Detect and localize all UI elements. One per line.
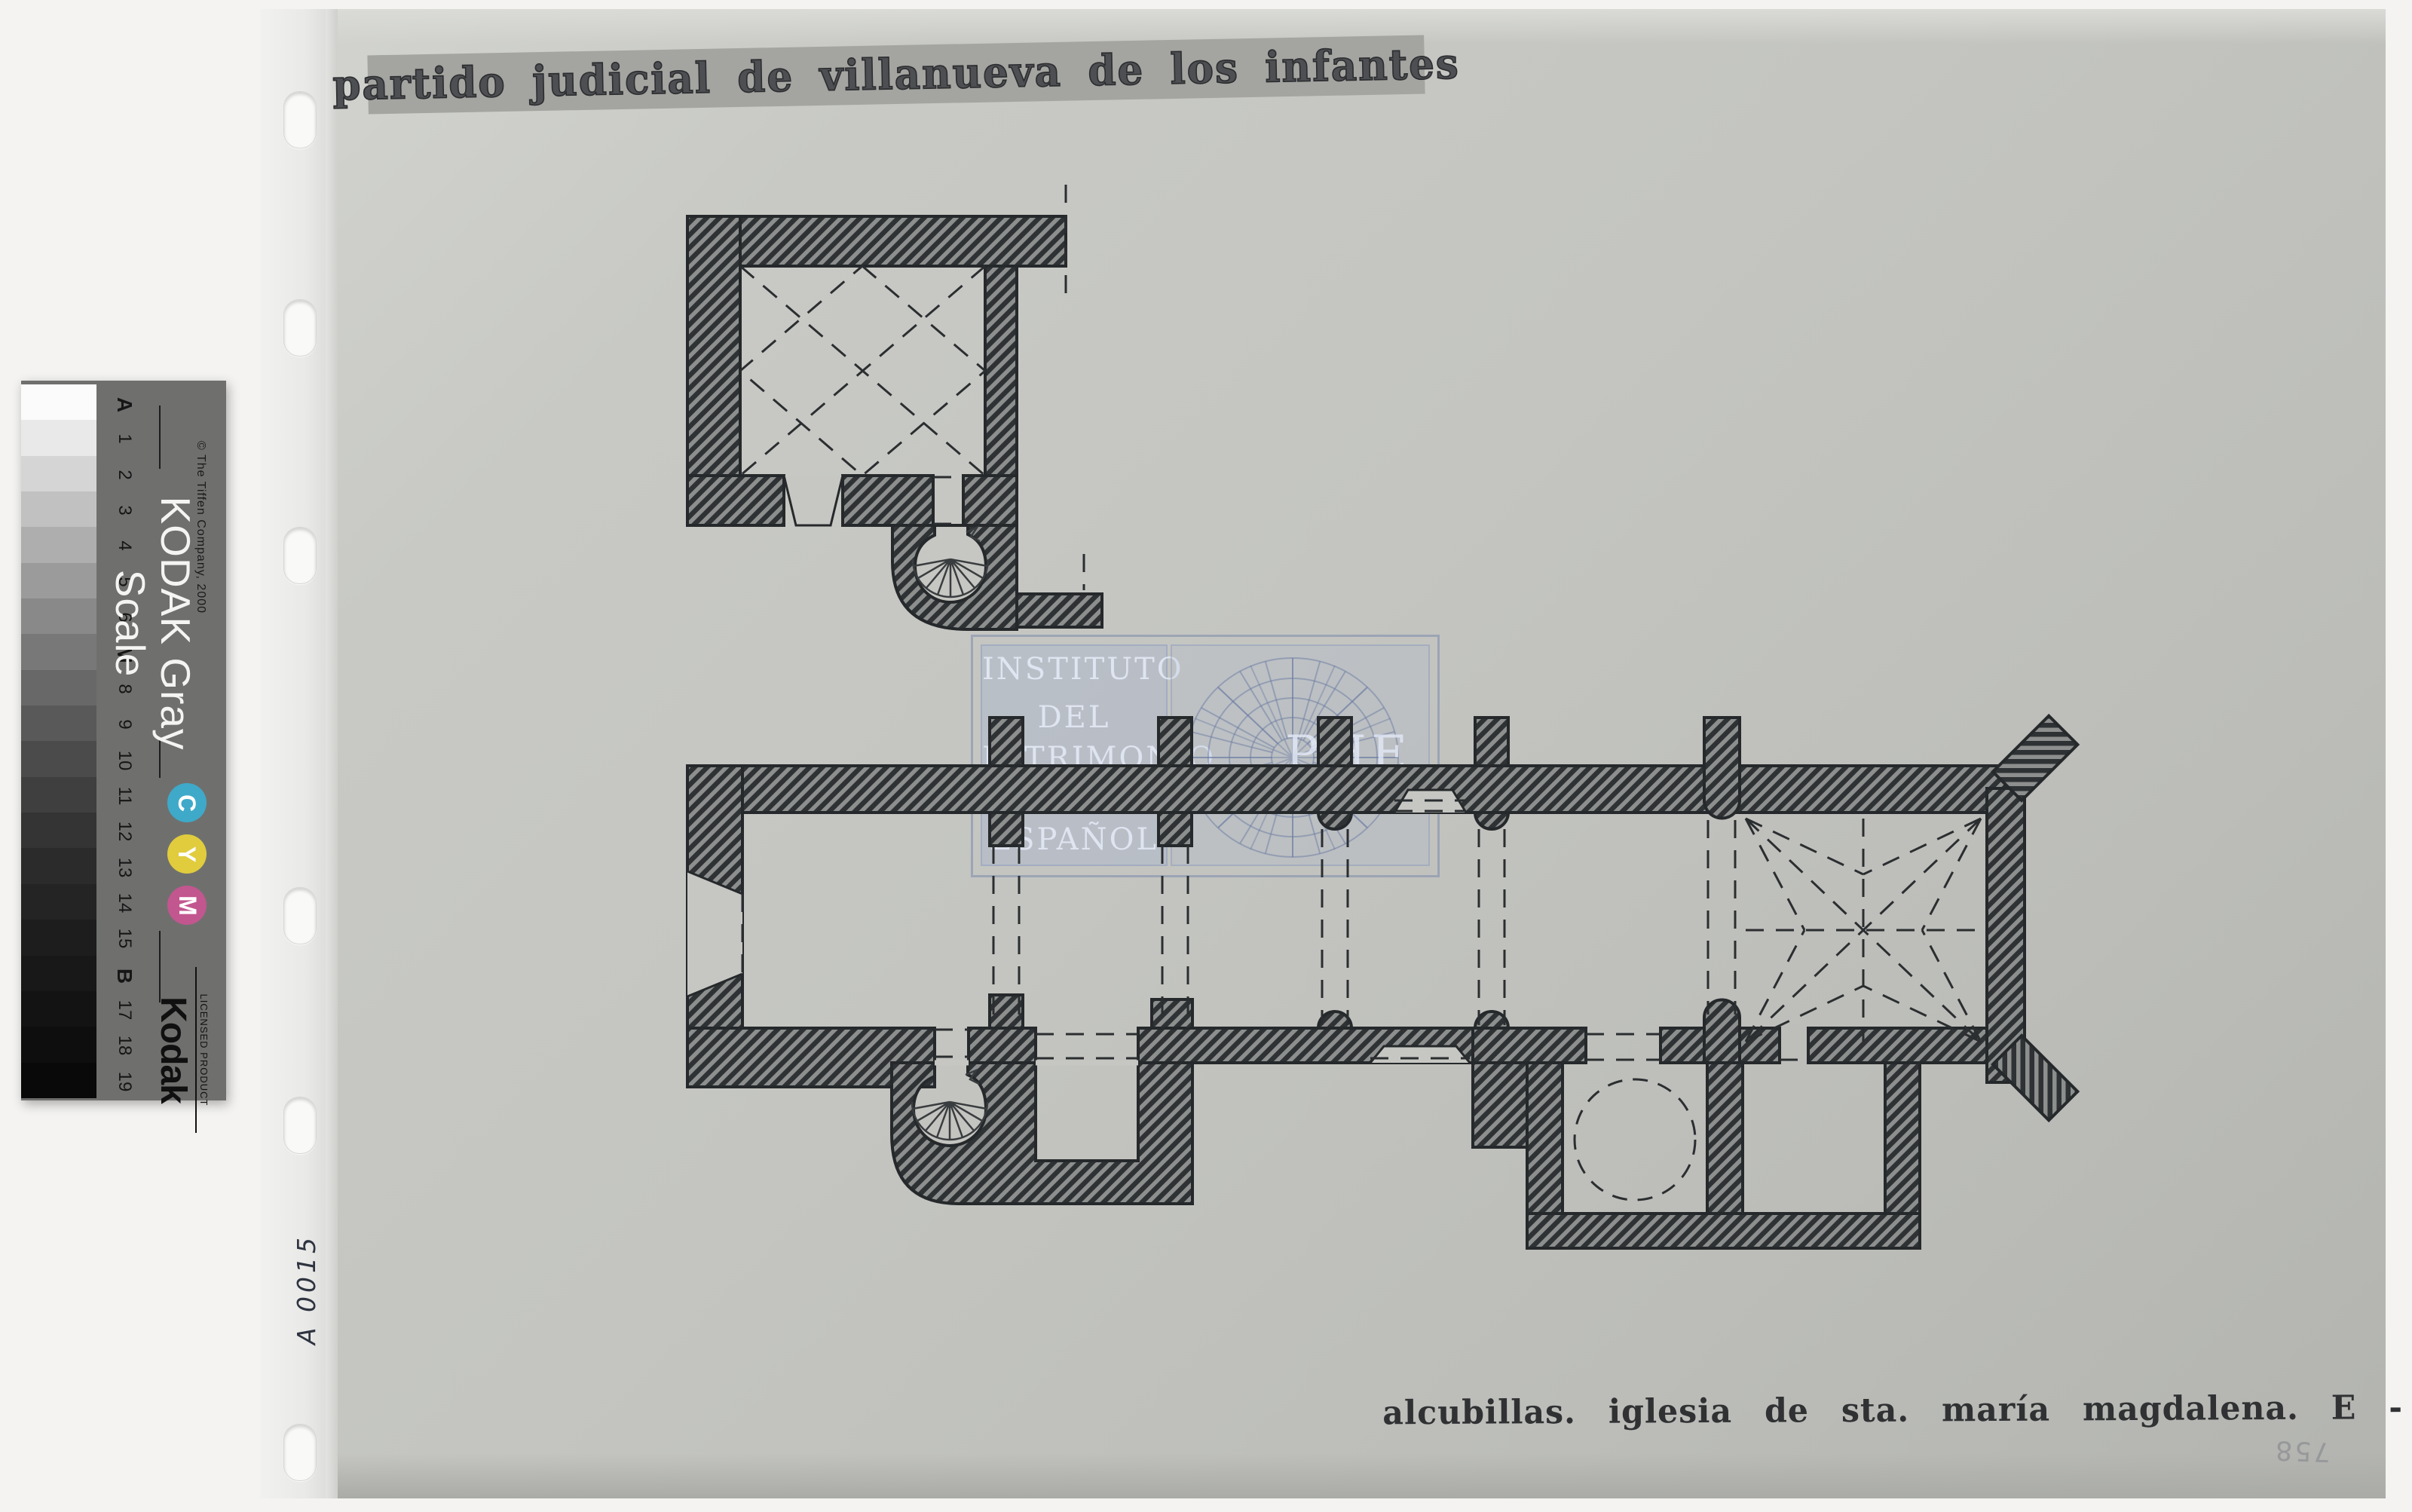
buttress	[1318, 718, 1351, 766]
church-walls	[687, 716, 2077, 1248]
wall	[985, 266, 1017, 476]
respond	[1475, 1012, 1508, 1028]
wall	[687, 476, 784, 525]
chapel-wall	[1473, 1063, 1527, 1147]
respond	[1318, 1012, 1351, 1028]
buttress	[1159, 718, 1192, 766]
north-wall	[687, 766, 2005, 813]
apse-star-vault	[1746, 819, 1981, 1042]
handwritten-reference-text: A 0015	[292, 1233, 322, 1344]
pencil-page-number: 758	[2254, 1429, 2331, 1466]
chancel-pier-north	[1704, 718, 1740, 818]
caption: alcubillas. iglesia de sta. maría magdal…	[1382, 1389, 2326, 1433]
chapel-wall	[1707, 1063, 1743, 1217]
chapel-south-wall	[1527, 1214, 1920, 1248]
nw-structure	[687, 216, 1102, 629]
transverse-arch	[1322, 829, 1348, 1025]
wall	[843, 476, 933, 525]
pilaster	[990, 995, 1023, 1028]
south-wall	[969, 1028, 1036, 1063]
vault-diagonals	[740, 266, 985, 476]
stair-turret-wall	[892, 525, 1017, 629]
wall-openings	[687, 790, 1470, 1063]
pilaster	[990, 813, 1023, 846]
splayed-door	[784, 476, 843, 525]
chancel-arch	[1708, 820, 1735, 1015]
wall	[963, 476, 1017, 525]
respond	[1475, 813, 1508, 829]
chapel-arch	[1586, 1034, 1661, 1060]
chapel-dome-circle	[1575, 1079, 1695, 1200]
chapel-arch	[1036, 1034, 1138, 1058]
handwritten-reference: A 0015	[265, 1229, 348, 1349]
floor-plan-drawing	[0, 0, 2412, 1512]
buttress	[1475, 718, 1508, 766]
respond	[1318, 813, 1351, 829]
stair-turret-and-chapel	[892, 1063, 1192, 1204]
pilaster	[1159, 813, 1192, 846]
transverse-arch	[1479, 829, 1504, 1025]
wall	[687, 216, 1066, 266]
south-wall	[1473, 1028, 1586, 1063]
south-portal	[1370, 1046, 1470, 1063]
wall	[1017, 594, 1102, 627]
scanned-archive-page: { "document": { "header_stamp": "partido…	[0, 0, 2412, 1512]
buttress	[990, 718, 1023, 766]
pilaster	[1152, 999, 1192, 1028]
chapel-wall	[1885, 1063, 1920, 1217]
stair-opening	[935, 1030, 969, 1057]
